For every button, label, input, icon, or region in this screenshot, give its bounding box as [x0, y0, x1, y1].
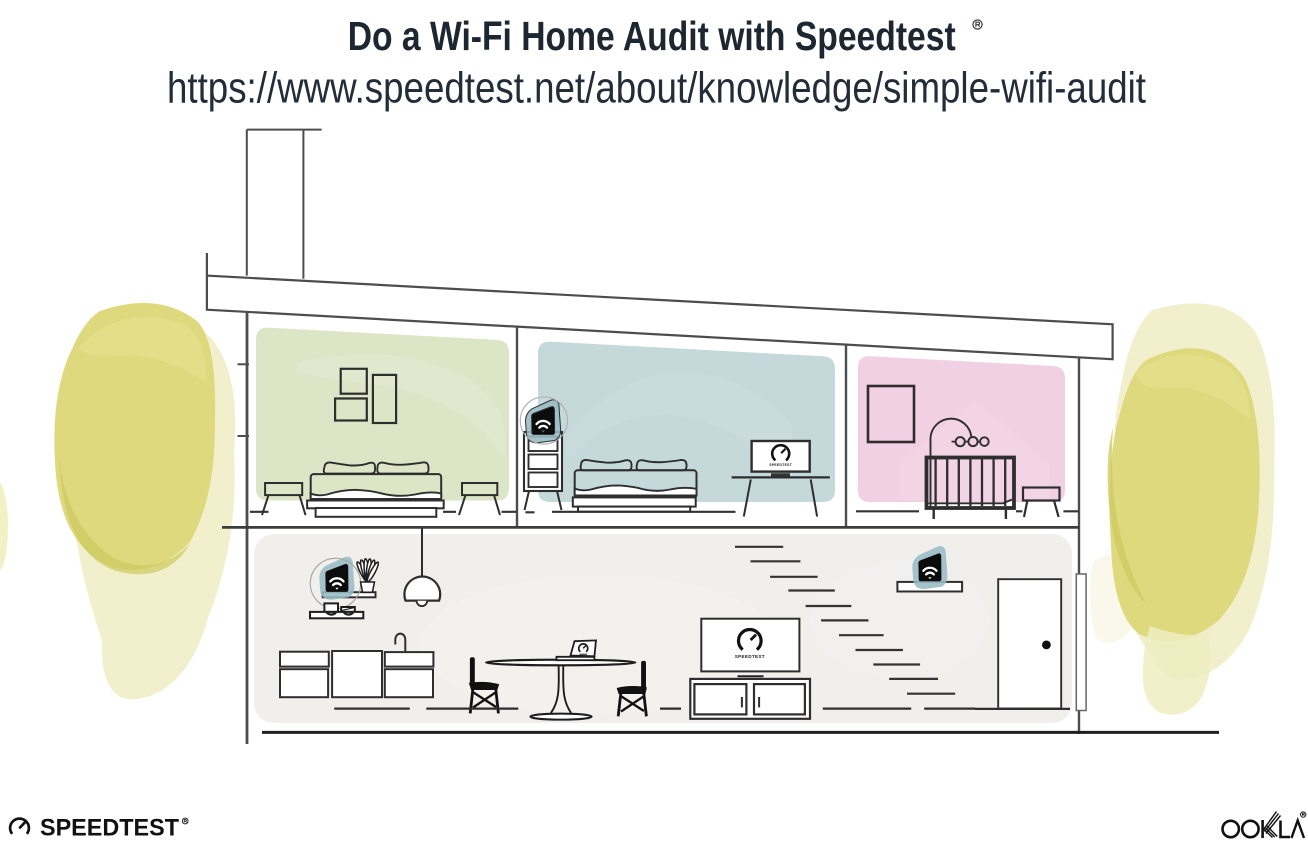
svg-text:Do a Wi-Fi Home Audit with Spe: Do a Wi-Fi Home Audit with Speedtest [348, 13, 956, 59]
svg-text:SPEEDTEST: SPEEDTEST [769, 463, 792, 467]
svg-text:https://www.speedtest.net/abou: https://www.speedtest.net/about/knowledg… [167, 65, 1146, 113]
svg-text:SPEEDTEST: SPEEDTEST [735, 654, 765, 659]
svg-text:SPEEDTEST: SPEEDTEST [40, 815, 179, 842]
